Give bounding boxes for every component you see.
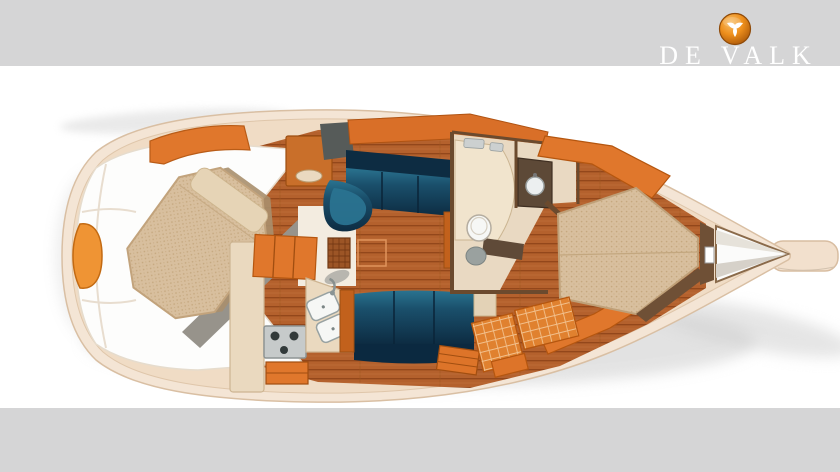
brand-wordmark: DE VALK — [652, 43, 818, 66]
swim-platform-pad — [73, 224, 102, 288]
brand-logo: DE VALK — [640, 0, 830, 66]
companionway-steps — [437, 346, 480, 375]
galley-cabinets — [253, 234, 317, 279]
page: DE VALK — [0, 0, 840, 472]
falcon-icon — [718, 12, 752, 46]
locker-latch — [705, 247, 714, 263]
salon-settee-lower — [354, 291, 474, 345]
settee-end-table — [474, 292, 496, 316]
top-band: DE VALK — [0, 0, 840, 66]
shower-drain — [466, 247, 486, 265]
vanity-sink — [526, 177, 544, 195]
bottom-band — [0, 408, 840, 472]
yacht-floorplan — [0, 0, 840, 472]
